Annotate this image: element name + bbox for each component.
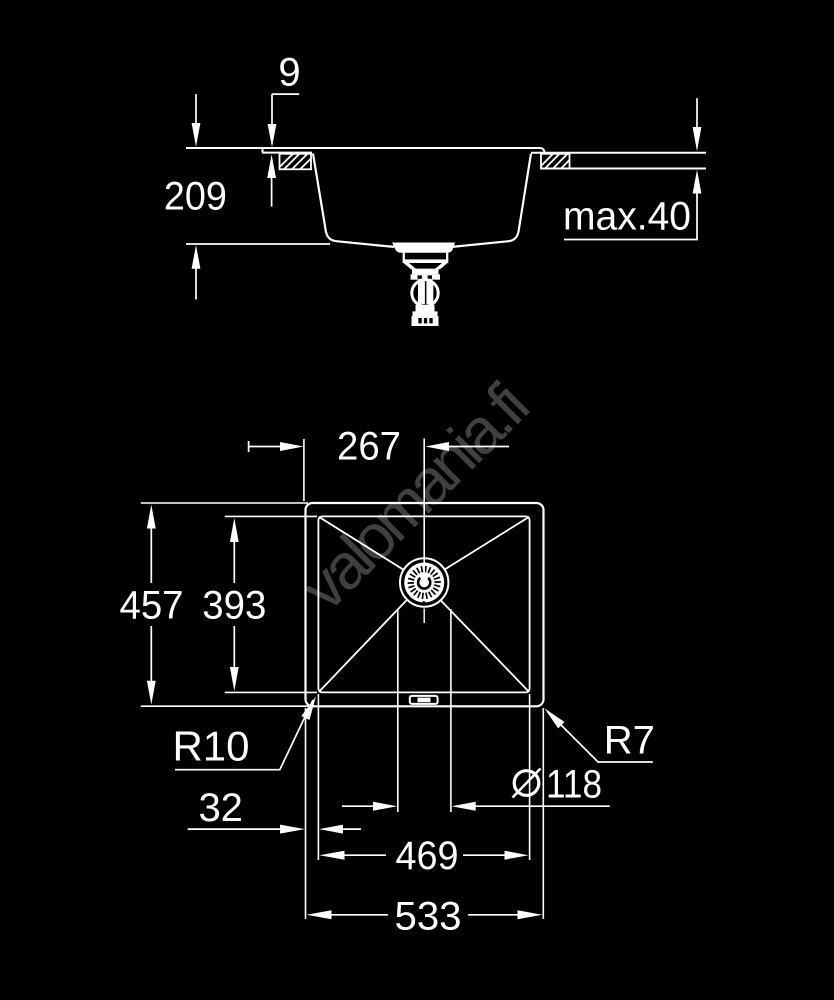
svg-text:R7: R7 [604, 718, 655, 762]
svg-text:R10: R10 [172, 723, 249, 770]
svg-text:533: 533 [395, 894, 462, 938]
svg-text:max.40: max.40 [563, 195, 691, 239]
svg-text:118: 118 [546, 763, 602, 807]
svg-text:393: 393 [202, 583, 266, 627]
svg-text:469: 469 [396, 834, 459, 878]
svg-text:209: 209 [164, 175, 227, 219]
svg-text:267: 267 [337, 424, 401, 468]
svg-text:9: 9 [278, 50, 300, 94]
svg-text:32: 32 [198, 786, 243, 830]
svg-text:457: 457 [120, 583, 184, 627]
